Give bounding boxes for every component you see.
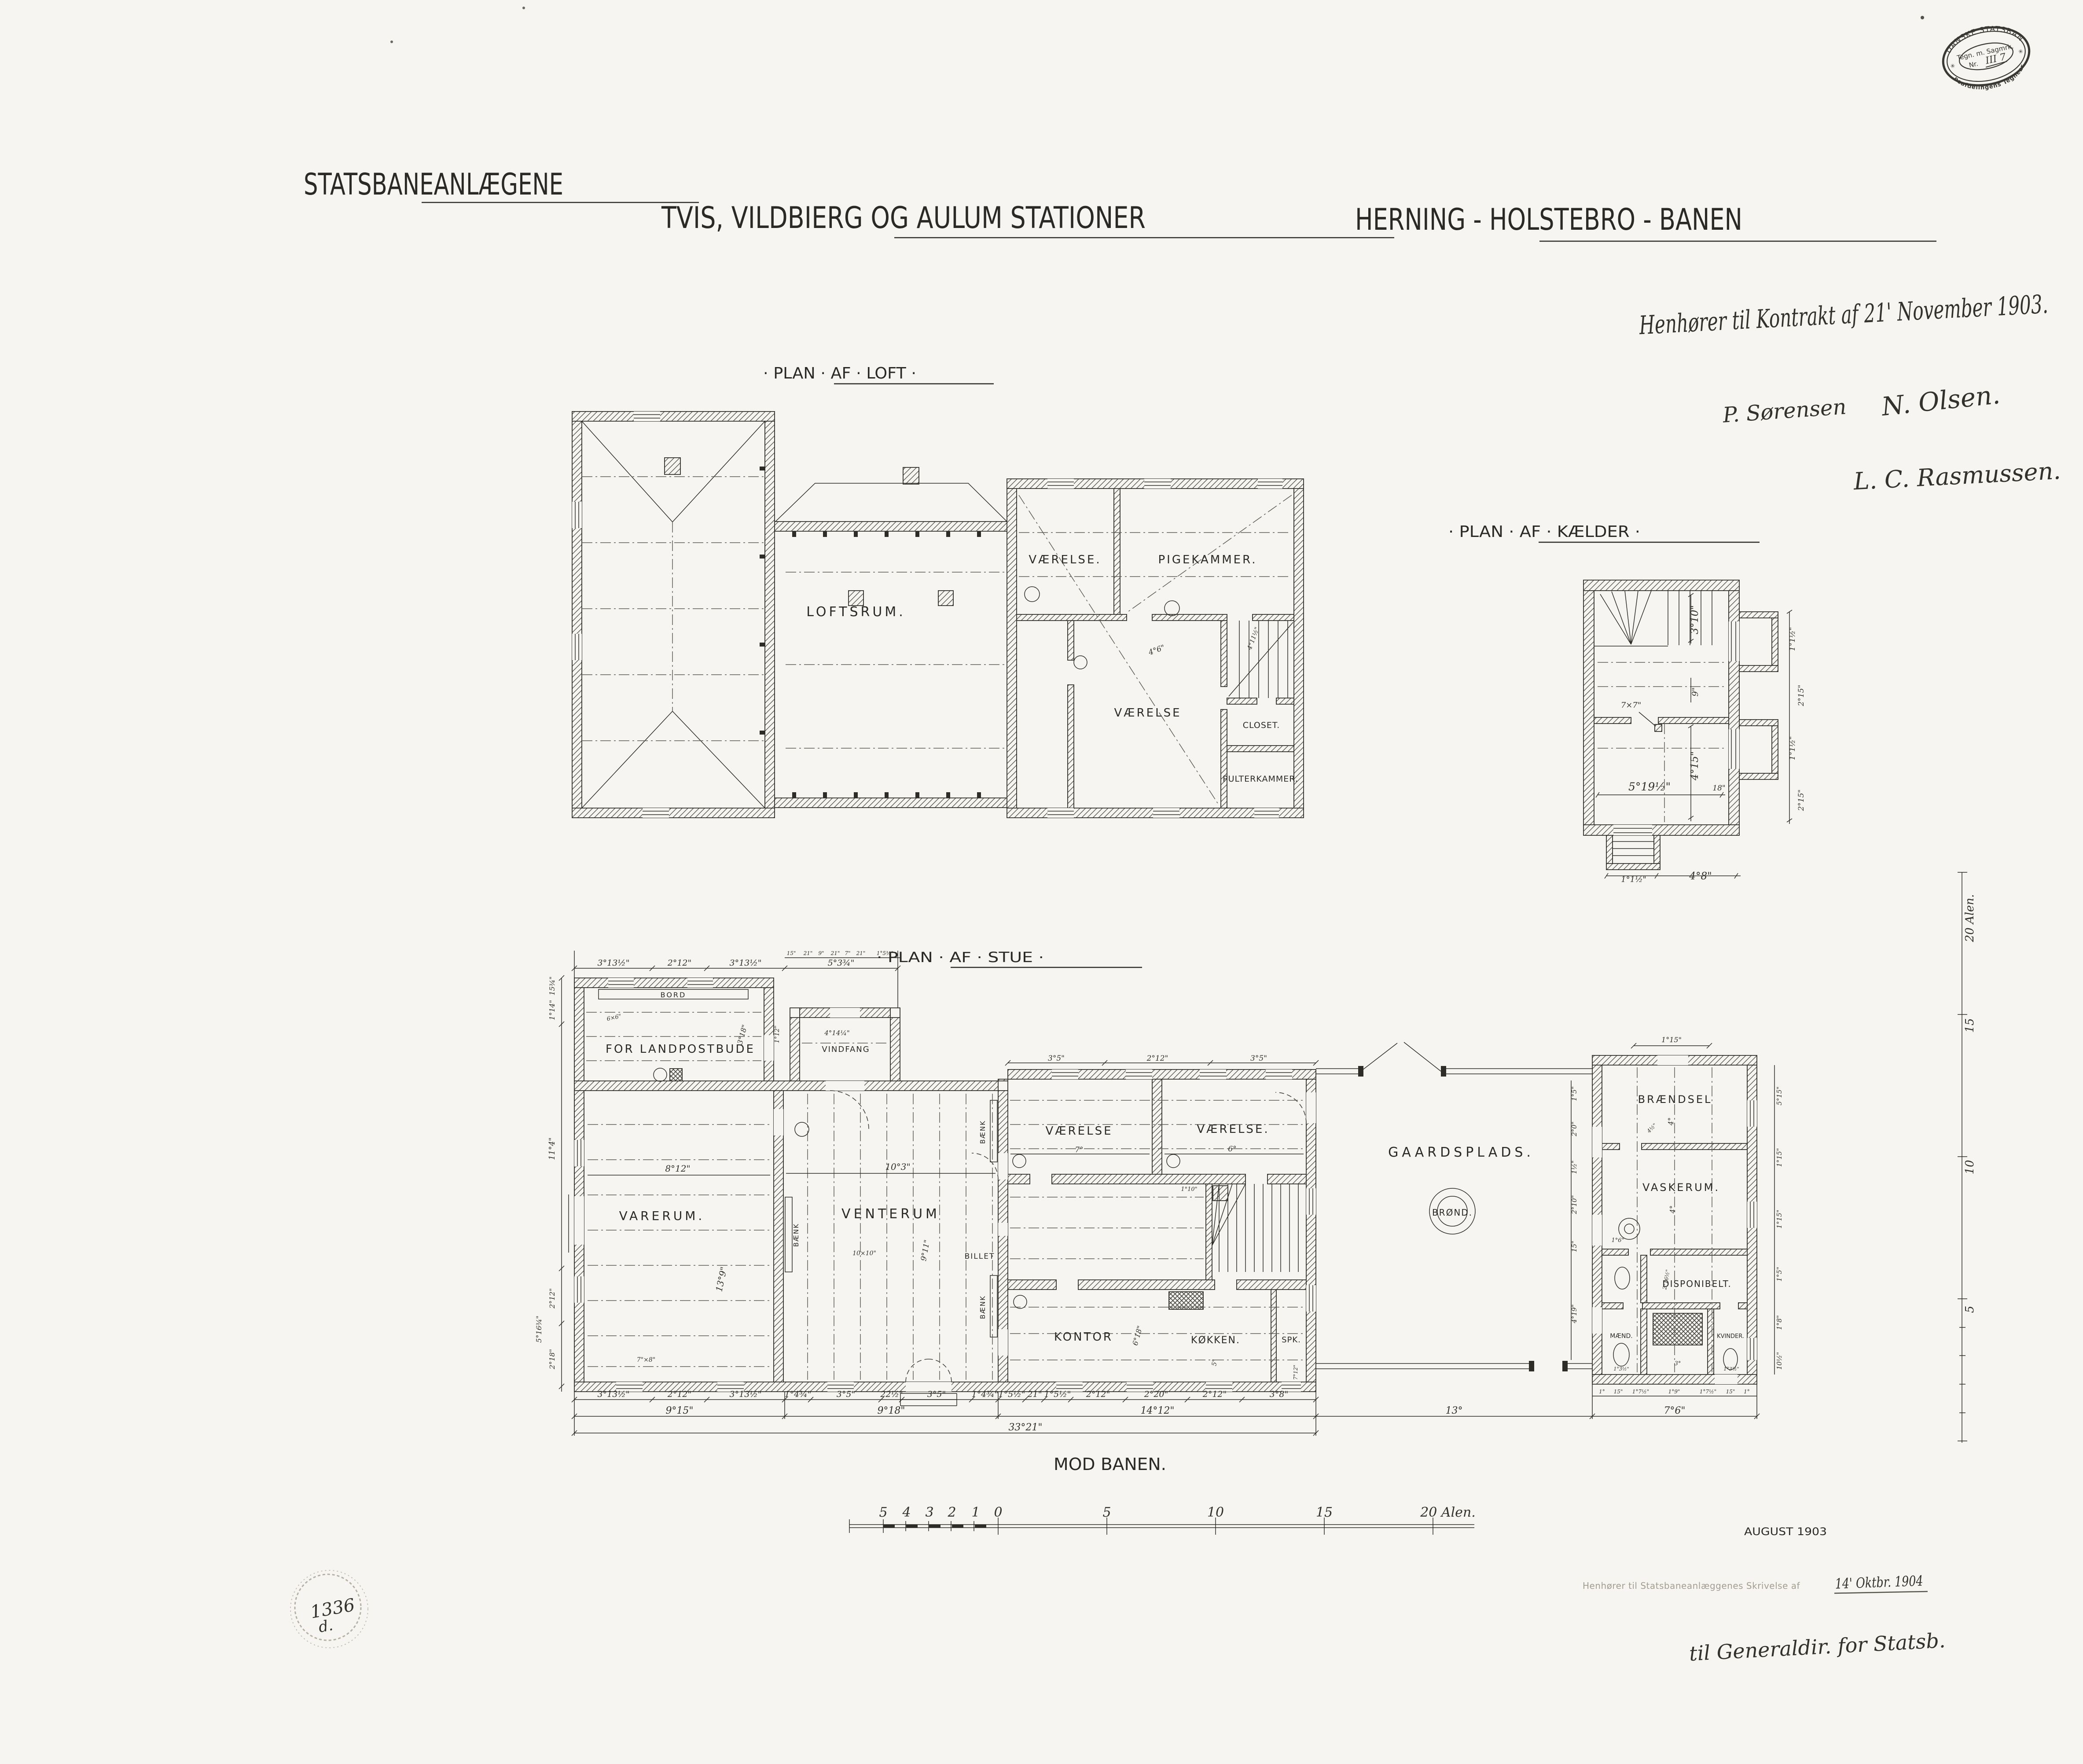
dim-label: 1°1½" — [1621, 875, 1646, 884]
contract-note: Henhører til Kontrakt af 21' November 19… — [1638, 289, 2049, 341]
dim-label: 6×6" — [606, 1013, 622, 1023]
room-label-closet: CLOSET. — [1243, 720, 1280, 730]
ruler-label-15: 15 — [1963, 1018, 1976, 1033]
room-label-spisekammer: SPK. — [1282, 1335, 1301, 1345]
dim-label: 1°3½" — [1613, 1366, 1629, 1372]
signature-2: N. Olsen. — [1879, 379, 2002, 422]
room-label-vaerelse-mid: VÆRELSE — [1114, 706, 1181, 720]
dim-label: 1°9" — [1668, 1389, 1680, 1395]
dim-label: 18" — [1712, 784, 1725, 793]
loft-walls — [572, 412, 1304, 818]
stue-wall-openings — [574, 978, 1757, 1392]
drawing-sheet: STATSBANEANLÆGENE TVIS, VILDBIERG OG AUL… — [0, 0, 2083, 1764]
dim-label: 1°15" — [1775, 1148, 1783, 1167]
dim-label: 13°9" — [713, 1266, 729, 1293]
scale-label: 10 — [1207, 1505, 1224, 1520]
dim-label: 4° — [1668, 1205, 1677, 1214]
dim-label: 21" — [1027, 1389, 1042, 1399]
signature-1: P. Sørensen — [1722, 394, 1847, 428]
stamp-arc-top-text: DE DANSKE STATSBANER — [1939, 18, 2028, 67]
vertical-ruler-lines — [1958, 872, 1967, 1443]
dim-label: 7°12" — [1293, 1365, 1299, 1380]
dim-label: 33°21" — [1008, 1422, 1042, 1433]
scale-label: 2 — [947, 1505, 956, 1520]
dim-label: 10½" — [1775, 1352, 1783, 1370]
room-label-vaskerum: VASKERUM. — [1642, 1181, 1720, 1194]
room-label-gaardsplads: GAARDSPLADS. — [1388, 1145, 1534, 1160]
dim-label: 15" — [1726, 1389, 1735, 1395]
dim-label: 9" — [1690, 687, 1700, 697]
dim-label: 3°13½" — [730, 958, 762, 968]
dim-label: 9°18" — [877, 1405, 905, 1416]
stue-window-glyphs — [577, 981, 1754, 1389]
dim-label: 2°12" — [667, 958, 692, 968]
kaelder-walls — [1583, 580, 1778, 870]
dim-label: 1°1½" — [1788, 627, 1797, 651]
stove-icon — [795, 1122, 809, 1136]
dim-label: 3°8" — [1270, 1389, 1288, 1399]
dim-label: 1°1½" — [1788, 736, 1797, 760]
railway-archive-stamp: DE DANSKE STATSBANER Baneafdelingens Teg… — [1937, 17, 2036, 99]
signature-3: L. C. Rasmussen. — [1852, 457, 2061, 496]
plan-kaelder: · PLAN · AF · KÆLDER · 3°10" 9" 7×7" 4°1… — [1448, 523, 1806, 884]
dim-label: 22½" — [880, 1389, 903, 1399]
dim-label: 4°19" — [1570, 1304, 1578, 1323]
dim-label: 4° — [1667, 1117, 1675, 1126]
program-title: STATSBANEANLÆGENE — [304, 167, 563, 202]
dim-label: 2°0" — [1570, 1121, 1578, 1137]
vertical-ruler: 20 Alen. 15 10 5 — [1958, 872, 1976, 1443]
dim-label: 10°3" — [885, 1161, 910, 1172]
room-label-kvinder: KVINDER. — [1717, 1333, 1744, 1340]
courtyard-fence — [1316, 1042, 1592, 1369]
approval-date: 14' Oktbr. 1904 — [1835, 1573, 1923, 1592]
dim-label: 1°5¾" — [877, 950, 893, 956]
scale-label-end: 20 Alen. — [1420, 1505, 1476, 1520]
dim-label: 15" — [787, 950, 796, 956]
scale-bar-cells — [883, 1525, 986, 1528]
stove-icon — [654, 1068, 667, 1081]
dim-label: 1°7½" — [1700, 1389, 1716, 1395]
dim-label: 1°10" — [1181, 1186, 1197, 1193]
sheet-title: TVIS, VILDBIERG OG AULUM STATIONER — [661, 201, 1146, 235]
dim-label: 3°18" — [736, 1024, 749, 1045]
dim-label: 2°12" — [667, 1389, 692, 1399]
footer: MOD BANEN. AUGUST 1903 Henhører til Stat… — [290, 1455, 1946, 1665]
scan-speck — [1921, 16, 1924, 19]
scan-speck — [522, 7, 525, 9]
dim-label: 6° — [1228, 1145, 1236, 1154]
dim-label: 3°13½" — [730, 1389, 762, 1399]
approval-date-underline — [1834, 1591, 1928, 1593]
dim-label: 1°12" — [774, 1025, 781, 1043]
room-label-vaerelse-nv: VÆRELSE. — [1029, 553, 1101, 566]
dim-label: 2°18" — [548, 1349, 556, 1370]
dim-label: 7×7" — [1621, 701, 1641, 710]
dim-label: 5° — [1211, 1359, 1218, 1366]
loft-stove-icon — [1074, 656, 1087, 669]
dim-label: 5°16¾" — [535, 1316, 543, 1342]
dim-label: 1°8" — [1775, 1315, 1783, 1330]
loft-stove-icon — [1025, 587, 1040, 602]
room-label-vaerelse-1: VÆRELSE — [1045, 1125, 1113, 1138]
dim-label: 2°12" — [1146, 1054, 1168, 1063]
dim-label: 1°5" — [1775, 1267, 1783, 1282]
stue-construction-lines — [586, 1012, 1712, 1380]
dim-label: 2°12" — [1086, 1389, 1110, 1399]
dim-label: 10×10" — [852, 1250, 876, 1257]
kaelder-title: · PLAN · AF · KÆLDER · — [1448, 523, 1640, 541]
dim-label: 15¾" — [548, 976, 556, 995]
dim-label: 21" — [856, 950, 866, 956]
dim-label: 2°15" — [1797, 790, 1806, 812]
dim-label: 5°3¾" — [828, 958, 855, 968]
dim-label: 7"×8" — [637, 1356, 655, 1363]
ruler-label-20: 20 Alen. — [1963, 894, 1976, 943]
dim-label: 9" — [818, 950, 824, 956]
toilet-icon — [1615, 1267, 1630, 1289]
room-label-landpost: FOR LANDPOSTBUDE — [606, 1043, 755, 1056]
dim-label: 15" — [1614, 1389, 1623, 1395]
dim-label: 1°3½" — [1723, 1366, 1739, 1372]
scale-label: 5 — [879, 1505, 887, 1520]
dim-label: 1°4¾" — [972, 1389, 999, 1399]
dim-label: 5°19½" — [1628, 780, 1671, 793]
round-stamp-number: 1336 — [309, 1595, 356, 1623]
dim-label: 1°15" — [1661, 1036, 1682, 1044]
header: STATSBANEANLÆGENE TVIS, VILDBIERG OG AUL… — [304, 167, 2061, 495]
loft-stove-icon — [1165, 601, 1179, 616]
scale-label: 3 — [925, 1505, 933, 1520]
dim-label: 9°15" — [665, 1405, 693, 1416]
plan-loft: · PLAN · AF · LOFT · LOFTSRUM. VÆRELSE. … — [572, 364, 1304, 818]
furniture-label-bord: BORD — [661, 991, 687, 999]
room-label-koekken: KØKKEN. — [1191, 1335, 1240, 1346]
dim-label: 2°12" — [548, 1288, 556, 1309]
dim-label: 15" — [1570, 1241, 1578, 1252]
room-label-vindfang: VINDFANG — [822, 1045, 870, 1054]
dim-label: 1°4¾" — [785, 1389, 812, 1399]
dim-label: 6°18" — [1131, 1325, 1144, 1346]
loft-stair-treads — [1229, 621, 1293, 698]
dim-label: 2°12" — [1202, 1389, 1227, 1399]
room-label-disponibelt: DISPONIBELT. — [1662, 1279, 1732, 1289]
stove-icon — [1013, 1154, 1026, 1168]
room-label-braendsel: BRÆNDSEL — [1638, 1093, 1712, 1106]
kettle-icon-inner — [1624, 1224, 1634, 1234]
dim-label: 3°13½" — [598, 1389, 630, 1399]
toilet-icon — [1613, 1343, 1629, 1366]
kettle-icon — [1619, 1218, 1640, 1239]
dim-label: 7" — [845, 950, 850, 956]
stamp-star-right-icon: ✳ — [2018, 48, 2024, 55]
dim-label: 3°5" — [1048, 1054, 1065, 1063]
scale-label: 0 — [994, 1505, 1002, 1520]
plan-drawing: STATSBANEANLÆGENE TVIS, VILDBIERG OG AUL… — [0, 0, 2083, 1764]
stove-icon — [1014, 1295, 1027, 1308]
scale-bar: 5 4 3 2 1 0 5 10 15 20 Alen. — [849, 1505, 1476, 1535]
furniture-label-baenk: BÆNK — [792, 1223, 800, 1247]
dim-label: 2°10" — [1570, 1195, 1578, 1214]
scale-label: 15 — [1316, 1505, 1333, 1520]
room-label-kontor: KONTOR — [1054, 1330, 1113, 1344]
furniture-label-billet: BILLET — [965, 1252, 995, 1261]
loft-roof-lines — [582, 421, 1007, 808]
courtyard-gate-posts — [1358, 1066, 1568, 1371]
stue-title: · PLAN · AF · STUE · — [877, 949, 1044, 966]
railway-title: HERNING - HOLSTEBRO - BANEN — [1355, 202, 1742, 237]
scale-label: 5 — [1102, 1505, 1111, 1520]
room-label-broend: BRØND. — [1432, 1207, 1473, 1218]
dim-label: 4°14¼" — [824, 1029, 850, 1037]
dim-label: 1°5½" — [999, 1389, 1025, 1399]
dim-label: 5°15" — [1775, 1086, 1783, 1105]
kaelder-window-glyphs — [1613, 621, 1736, 833]
plan-stue: · PLAN · AF · STUE · FOR LANDPOSTBUDE VI… — [535, 949, 1783, 1436]
dim-label: 1° — [1744, 1389, 1750, 1395]
stamp-star-left-icon: ✳ — [1950, 62, 1956, 70]
approval-stamp-text: Henhører til Statsbaneanlæggenes Skrivel… — [1583, 1580, 1800, 1591]
dim-label: 4°8" — [1689, 871, 1712, 882]
kaelder-wall-openings — [1613, 621, 1739, 835]
dim-label: 1½" — [1570, 1161, 1578, 1174]
room-label-vaerelse-2: VÆRELSE. — [1197, 1123, 1269, 1136]
stue-walls — [574, 978, 1757, 1392]
dim-label: 8°12" — [665, 1163, 690, 1174]
approval-note: til Generaldir. for Statsb. — [1689, 1628, 1946, 1665]
dim-label: 3°13½" — [598, 958, 630, 968]
furniture-label-baenk: BÆNK — [979, 1120, 987, 1144]
dim-label: 1°15" — [1775, 1209, 1783, 1228]
scale-bar-lines — [849, 1518, 1474, 1535]
dim-label: 3°10" — [1689, 605, 1701, 634]
dim-label: 7° — [1075, 1146, 1083, 1154]
dim-label: 3°5" — [927, 1389, 946, 1399]
kaelder-construction-lines — [1598, 662, 1726, 822]
room-label-maend: MÆND. — [1610, 1333, 1632, 1340]
dim-label: 9°11" — [919, 1239, 932, 1262]
dim-label: 1°14" — [548, 1000, 556, 1020]
dim-label: 4½" — [1646, 1122, 1658, 1134]
dim-label: 1°5" — [1570, 1086, 1578, 1101]
scale-label: 1 — [971, 1505, 980, 1520]
mod-banen-label: MOD BANEN. — [1054, 1455, 1166, 1474]
dim-label: 4°15" — [1689, 751, 1701, 781]
room-label-pigekammer: PIGEKAMMER. — [1158, 553, 1257, 566]
dim-label: 2°20" — [1144, 1389, 1168, 1399]
loft-title: · PLAN · AF · LOFT · — [763, 364, 916, 382]
date-label: AUGUST 1903 — [1744, 1525, 1827, 1538]
ruler-label-5: 5 — [1963, 1306, 1976, 1313]
dim-label: 21" — [803, 950, 813, 956]
dim-label: 11°4" — [547, 1137, 557, 1160]
dim-label: 7°6" — [1664, 1405, 1685, 1416]
room-label-venterum: VENTERUM — [841, 1206, 940, 1222]
dim-label: 1° — [1599, 1389, 1605, 1395]
dim-label: 3°5" — [837, 1389, 855, 1399]
stamp-nr-label: Nr. — [1968, 59, 1979, 69]
round-stamp-sub: d. — [317, 1617, 334, 1636]
dim-label: 3°5" — [1250, 1054, 1267, 1063]
dim-label: 1°6" — [1611, 1237, 1624, 1244]
dim-label: 1°7½" — [1632, 1389, 1649, 1395]
dim-label: 13° — [1446, 1405, 1463, 1416]
room-label-varerum: VARERUM. — [619, 1209, 705, 1223]
dim-label: 4°6" — [1147, 643, 1166, 657]
dim-label: 21" — [830, 950, 840, 956]
stue-hearth-and-pit — [670, 1069, 1702, 1345]
furniture-label-baenk: BÆNK — [979, 1295, 987, 1319]
dim-label: 1°5½" — [1044, 1389, 1071, 1399]
dim-label: 14°12" — [1140, 1405, 1174, 1416]
scan-speck — [390, 40, 393, 43]
room-label-pulterkammer: PULTERKAMMER. — [1223, 774, 1298, 784]
room-label-loftsrum: LOFTSRUM. — [806, 604, 906, 620]
stove-icon — [1167, 1154, 1180, 1168]
scale-label: 4 — [902, 1505, 911, 1520]
ruler-label-10: 10 — [1963, 1160, 1976, 1174]
dim-label: 3° — [1675, 1360, 1681, 1367]
dim-label: 2°15" — [1797, 685, 1806, 707]
